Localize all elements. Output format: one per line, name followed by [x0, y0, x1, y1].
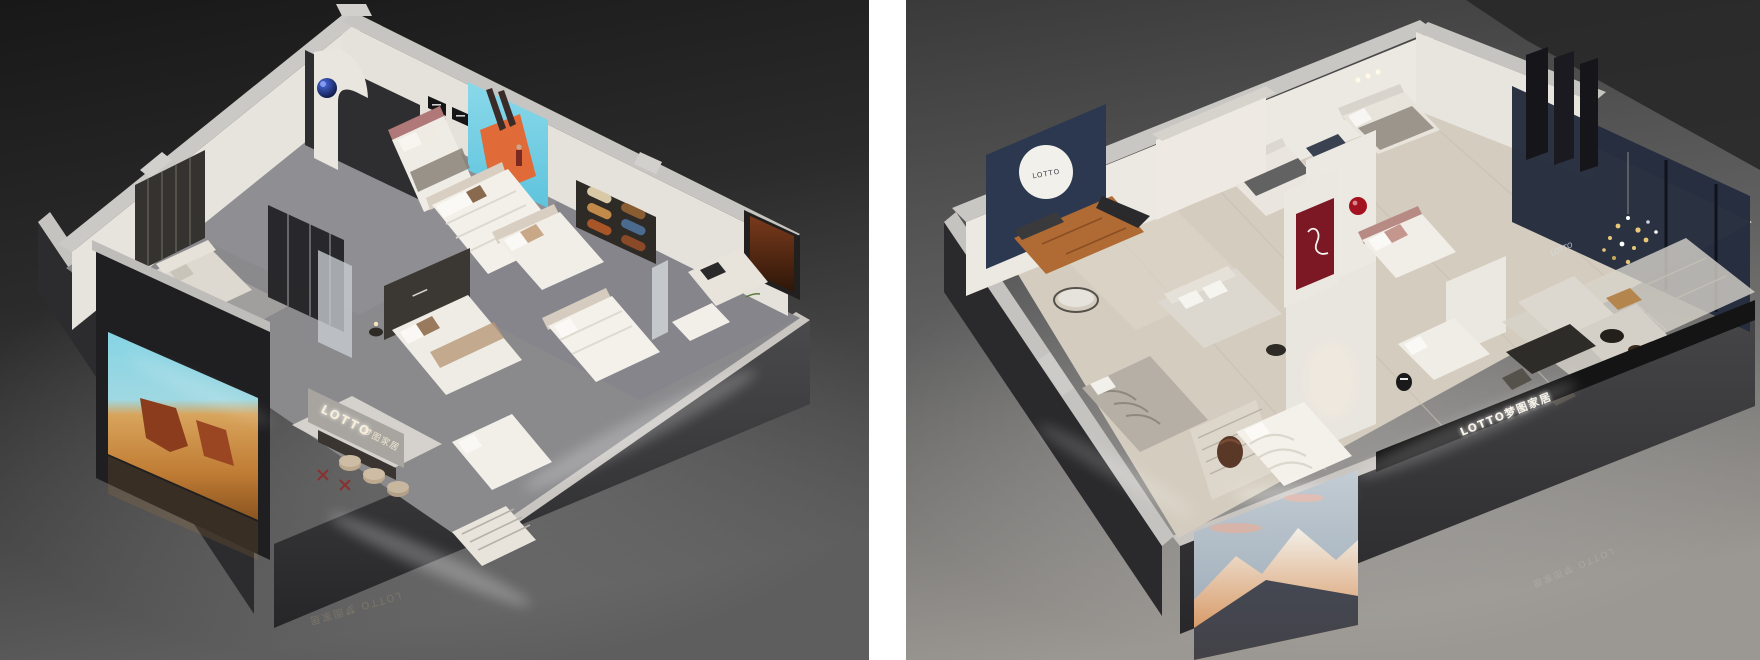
right-photo-cloud [1284, 494, 1324, 502]
right-pilaster [1554, 51, 1574, 165]
left-lamp-glow [374, 322, 378, 326]
right-wall-light [1375, 69, 1380, 74]
left-render-svg: LOTTO LOTTO 梦图家居 [0, 0, 869, 660]
right-pilaster [1580, 58, 1598, 172]
right-photo-cloud [1210, 523, 1262, 533]
right-render-svg: LOTTO [906, 0, 1760, 660]
right-pilaster [1526, 47, 1548, 160]
right-round-table [1266, 344, 1286, 356]
right-red-sphere [1349, 197, 1367, 215]
left-nightstand [369, 328, 383, 337]
right-lounge-table [1600, 329, 1624, 343]
left-blue-sphere [317, 78, 337, 98]
right-black-pot [1396, 373, 1412, 391]
left-render: LOTTO LOTTO 梦图家居 [0, 0, 869, 660]
right-wall-light [1365, 73, 1370, 78]
panel-divider [869, 0, 906, 660]
right-wall-light [1355, 77, 1360, 82]
left-mirror [652, 260, 668, 340]
screenshot-canvas: LOTTO LOTTO 梦图家居 [0, 0, 1760, 660]
left-mural-figure [516, 150, 522, 166]
left-pillar-notch [336, 4, 372, 16]
right-render: LOTTO [906, 0, 1760, 660]
left-frosted-door [318, 250, 352, 358]
